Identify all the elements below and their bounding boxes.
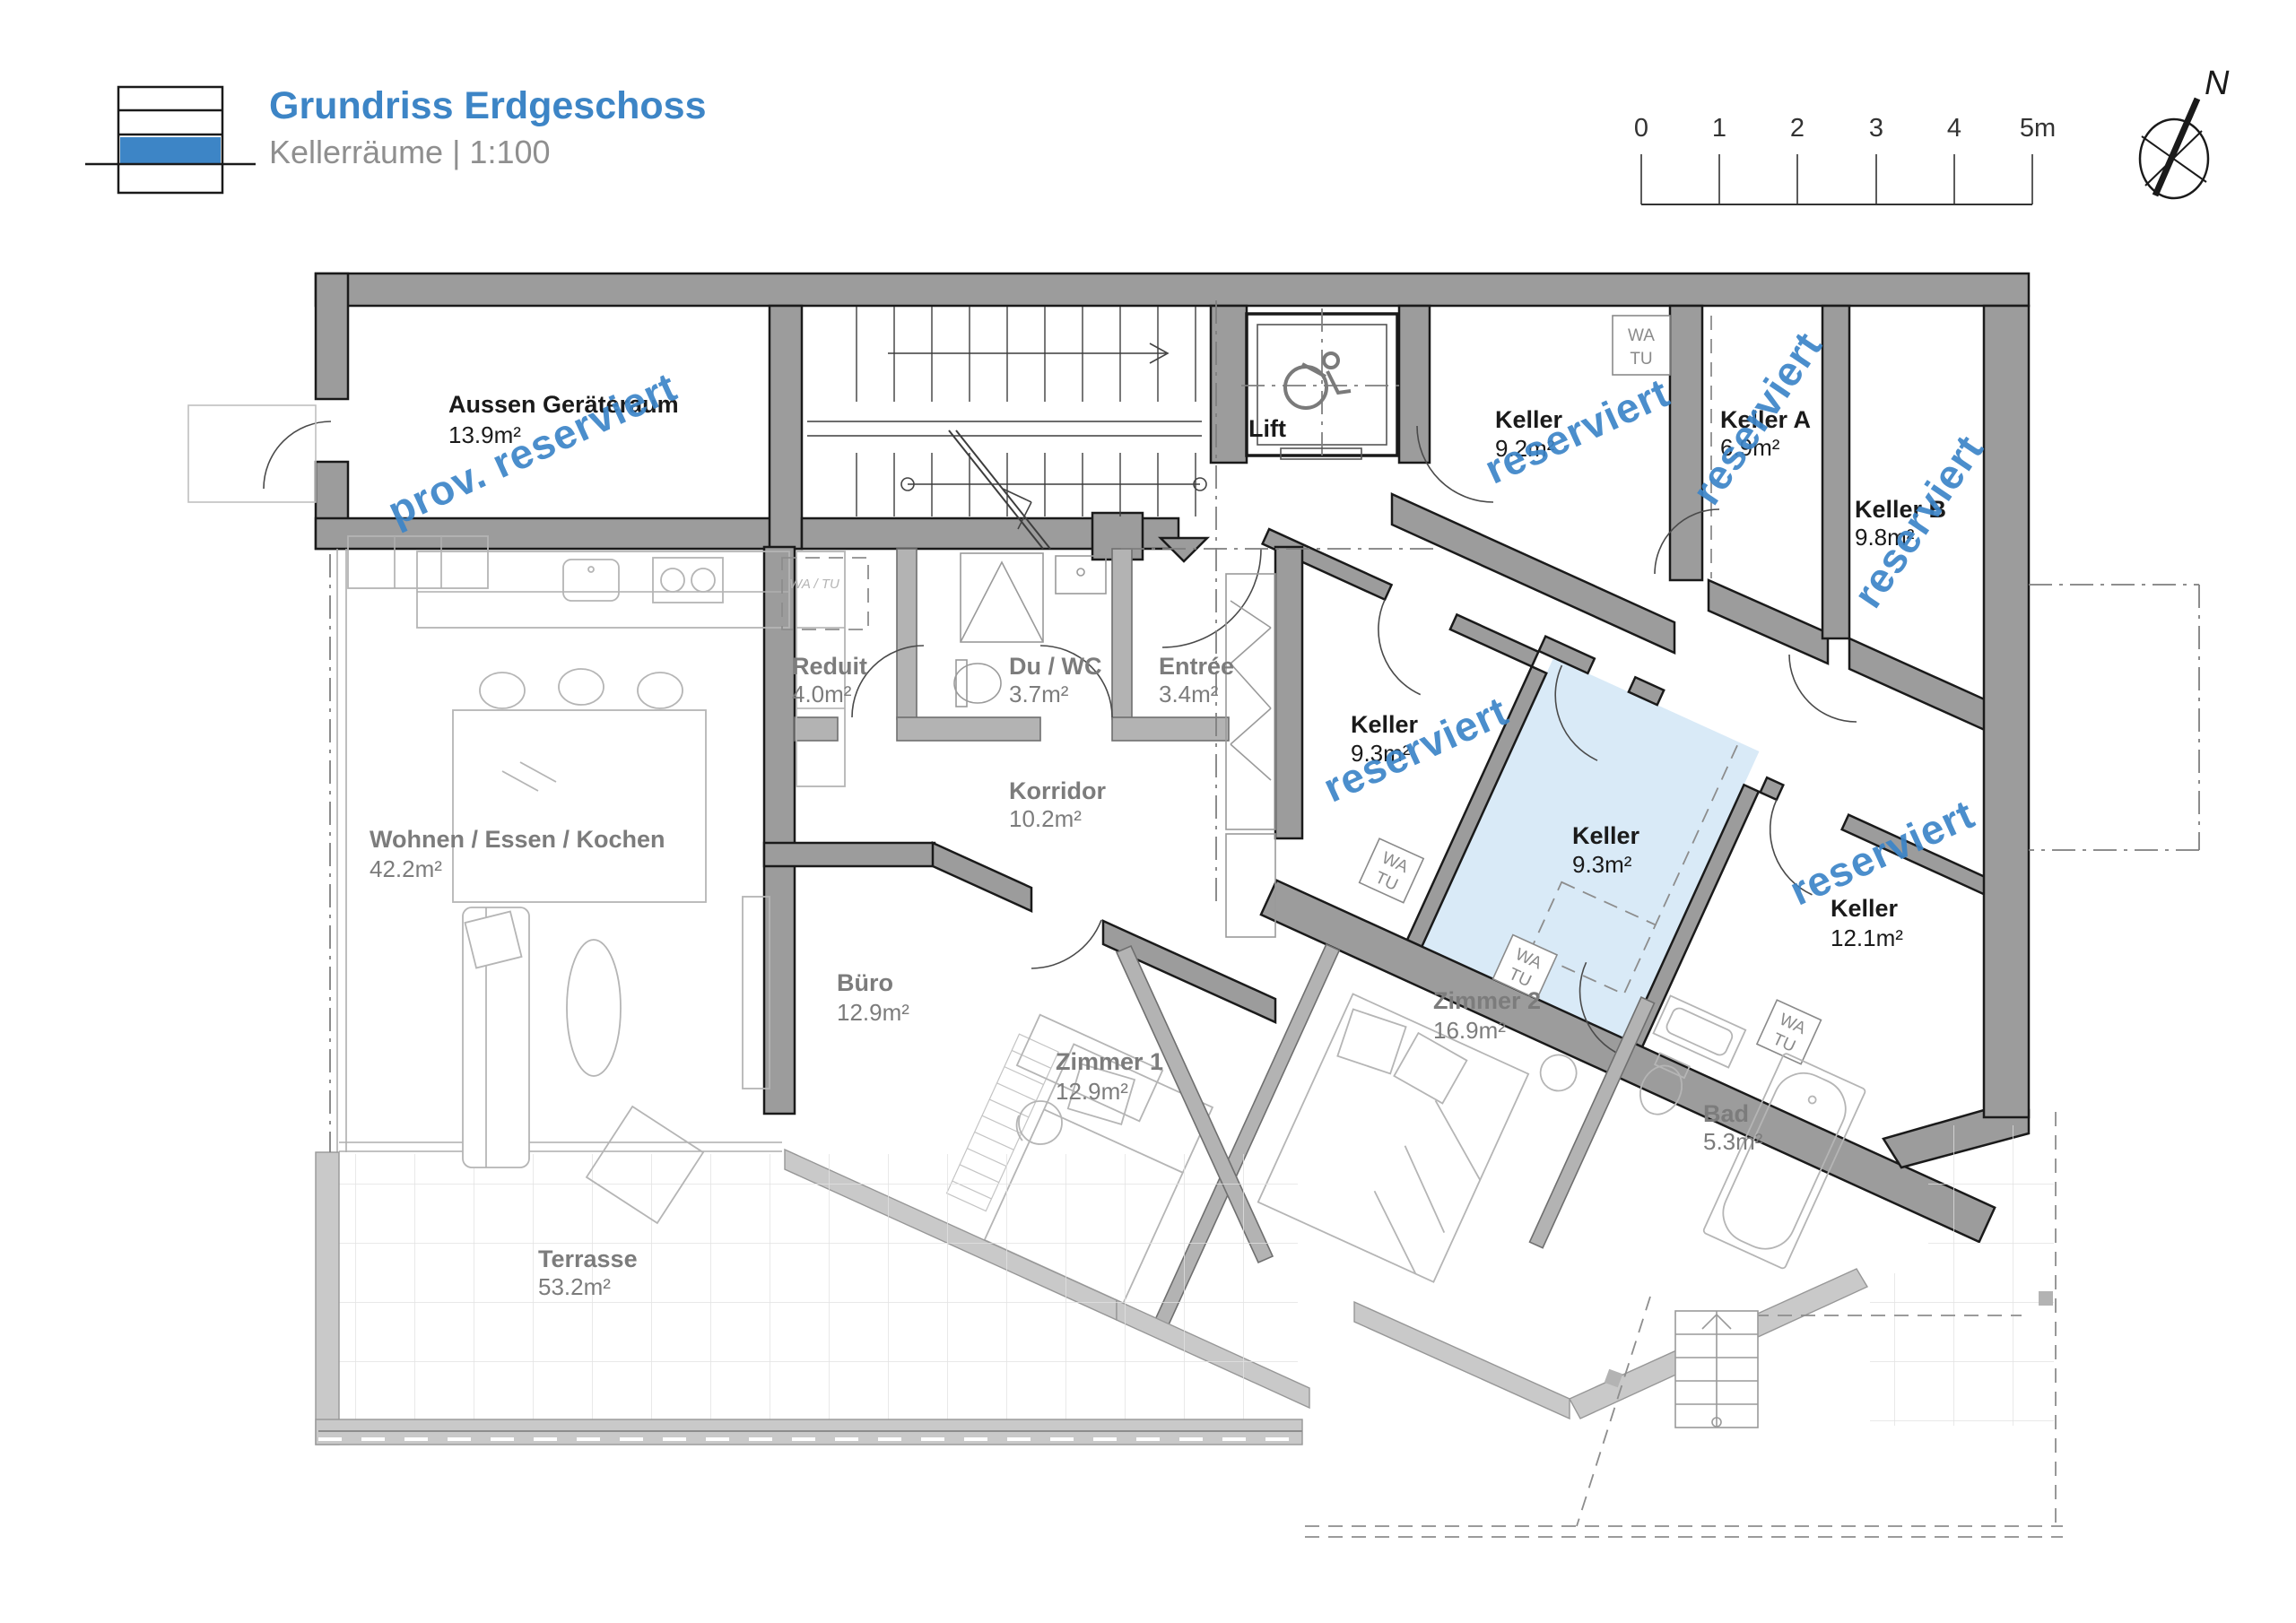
wall-korridor-south bbox=[764, 843, 935, 866]
room-area: 12.9m² bbox=[837, 999, 909, 1026]
room-label: Bad bbox=[1703, 1100, 1749, 1127]
wall-92-A bbox=[1670, 306, 1702, 580]
exterior-stair bbox=[1675, 1311, 1758, 1428]
page-title: Grundriss Erdgeschoss bbox=[269, 84, 707, 127]
scale-tick-5: 5m bbox=[2020, 114, 2056, 143]
room-label: Lift bbox=[1248, 415, 1286, 442]
exterior-canopy bbox=[188, 405, 316, 502]
room-area: 53.2m² bbox=[538, 1273, 611, 1300]
north-compass-icon: N bbox=[2140, 65, 2230, 198]
room-label: Wohnen / Essen / Kochen bbox=[370, 826, 665, 853]
scale-bar: 0 1 2 3 4 5m bbox=[1634, 114, 2056, 204]
room-label: Korridor bbox=[1009, 777, 1106, 804]
wall-lift-keller bbox=[1399, 306, 1430, 463]
room-label: Zimmer 2 bbox=[1433, 987, 1541, 1014]
wc-sink bbox=[1056, 556, 1106, 594]
scale-tick-2: 2 bbox=[1790, 114, 1805, 143]
svg-text:WA: WA bbox=[1628, 326, 1655, 345]
wall-geraeteraum-south bbox=[316, 518, 802, 549]
scale-tick-1: 1 bbox=[1712, 114, 1726, 143]
wc bbox=[954, 660, 1001, 707]
dining-set bbox=[453, 669, 706, 902]
header: Grundriss Erdgeschoss Kellerräume | 1:10… bbox=[85, 84, 707, 193]
wall-geraeteraum-stair bbox=[770, 306, 802, 549]
room-label: Reduit bbox=[792, 653, 867, 680]
wall-west-upper bbox=[316, 273, 348, 399]
wall-north bbox=[316, 273, 2029, 306]
room-area: 16.9m² bbox=[1433, 1017, 1506, 1044]
floorplan-page: Grundriss Erdgeschoss Kellerräume | 1:10… bbox=[0, 0, 2296, 1623]
logo-blue-stripe bbox=[120, 137, 221, 164]
room-label: Keller bbox=[1572, 822, 1640, 849]
wall-east bbox=[1984, 306, 2029, 1117]
svg-text:WA / TU: WA / TU bbox=[789, 577, 839, 592]
window-band-z2 bbox=[1354, 1302, 1570, 1419]
shower bbox=[961, 553, 1043, 642]
room-area: 9.3m² bbox=[1572, 851, 1632, 878]
room-label: Terrasse bbox=[538, 1245, 638, 1272]
sofa bbox=[463, 907, 529, 1167]
page-subtitle: Kellerräume | 1:100 bbox=[269, 134, 551, 170]
wall-entree-keller bbox=[1275, 547, 1302, 838]
room-area: 10.2m² bbox=[1009, 805, 1082, 832]
scale-tick-3: 3 bbox=[1869, 114, 1883, 143]
room-area: 12.9m² bbox=[1056, 1078, 1128, 1105]
wa-tu-box: WA TU bbox=[1613, 316, 1670, 375]
door-arc-buero bbox=[1031, 920, 1101, 968]
room-label: Entrée bbox=[1159, 653, 1234, 680]
room-area: 5.3m² bbox=[1703, 1128, 1763, 1155]
room-label: Du / WC bbox=[1009, 653, 1101, 680]
wall-living-east bbox=[764, 547, 795, 1114]
svg-text:TU: TU bbox=[1630, 350, 1652, 369]
room-area: 3.7m² bbox=[1009, 681, 1069, 707]
kitchen-sink bbox=[563, 560, 619, 601]
room-area: 42.2m² bbox=[370, 855, 442, 882]
room-area: 12.1m² bbox=[1831, 924, 1903, 951]
watermark-prov-reserviert: prov. reserviert bbox=[380, 363, 683, 534]
room-area: 4.0m² bbox=[792, 681, 852, 707]
compass-n-label: N bbox=[2205, 65, 2230, 102]
wall-reduit-duwc bbox=[897, 549, 917, 719]
coffee-table bbox=[567, 940, 621, 1076]
logo bbox=[85, 87, 256, 193]
scale-tick-4: 4 bbox=[1947, 114, 1961, 143]
staircase bbox=[807, 307, 1206, 549]
room-label: Keller bbox=[1831, 895, 1899, 922]
room-label: Büro bbox=[837, 969, 893, 996]
cooktop bbox=[653, 558, 723, 603]
room-label: Zimmer 1 bbox=[1056, 1048, 1163, 1075]
scale-tick-0: 0 bbox=[1634, 114, 1648, 143]
floor-plan-canvas: Grundriss Erdgeschoss Kellerräume | 1:10… bbox=[0, 0, 2296, 1623]
room-area: 3.4m² bbox=[1159, 681, 1219, 707]
terrace-wall-west bbox=[316, 1152, 339, 1445]
wall-duwc-entree bbox=[1112, 549, 1132, 719]
wall-korridor-slant-1 bbox=[933, 843, 1031, 911]
